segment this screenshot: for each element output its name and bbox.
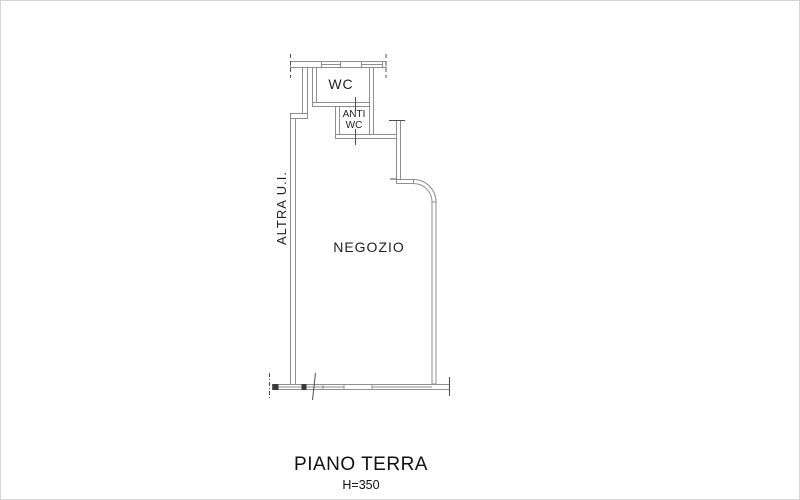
floor-title: PIANO TERRA [261,454,461,476]
antiwc-south-wall [336,135,399,139]
left-wall-upper [303,68,308,114]
wc-east-wall [370,68,374,139]
antiwc-west-wall [336,107,340,135]
passage-south-jog [397,180,414,184]
floor-plan-drawing [1,1,800,500]
storefront-pier-mid [302,384,307,390]
corner-arc-outer [414,180,437,203]
wc-west-wall [313,68,317,107]
passage-east-wall [397,121,401,180]
height-note: H=350 [261,478,461,492]
left-wall-lower [291,119,296,385]
right-exterior-wall [432,202,436,384]
storefront-pier-left [273,384,279,390]
left-wall-jog [291,114,308,119]
floor-plan-page: WC ANTI WC NEGOZIO ALTRA U.I. PIANO TERR… [0,0,800,500]
wc-south-wall [313,103,370,107]
